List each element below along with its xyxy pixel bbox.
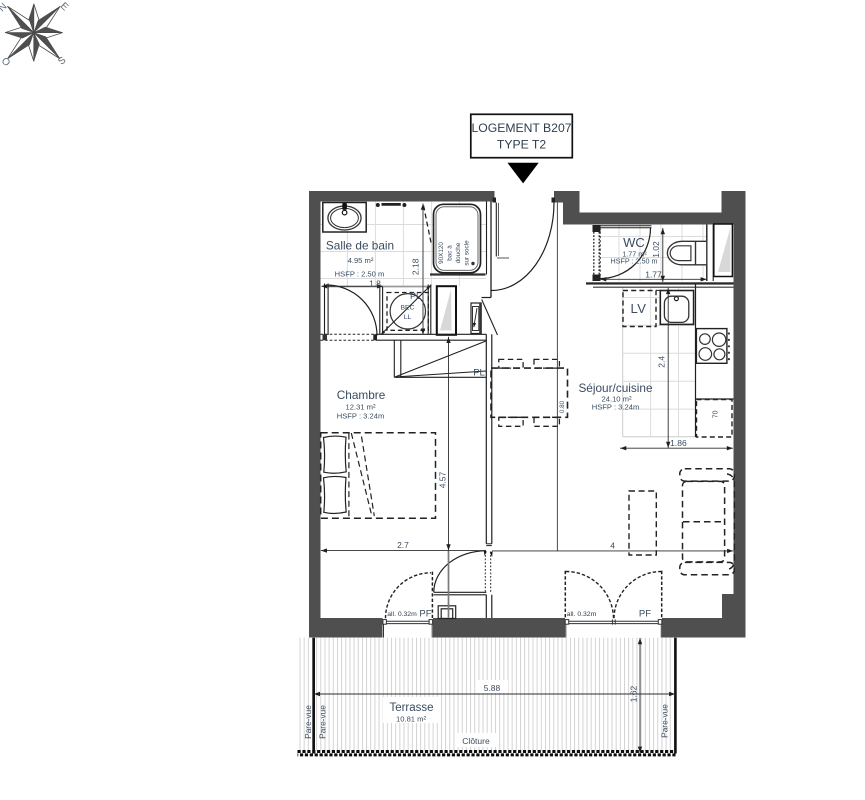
svg-text:1.86: 1.86 (670, 438, 687, 448)
svg-text:HSFP : 3.24m: HSFP : 3.24m (337, 412, 385, 421)
svg-text:Terrasse: Terrasse (389, 702, 433, 714)
svg-text:0.80: 0.80 (559, 400, 566, 413)
svg-text:LV: LV (631, 301, 647, 316)
svg-text:90X120: 90X120 (438, 242, 445, 264)
svg-text:10.81 m²: 10.81 m² (396, 715, 426, 724)
svg-text:2.4: 2.4 (657, 356, 667, 368)
svg-text:Pare-vue: Pare-vue (660, 704, 670, 738)
svg-text:Pare-vue: Pare-vue (303, 705, 313, 739)
svg-text:all. 0.32m: all. 0.32m (567, 611, 597, 618)
svg-text:1.77: 1.77 (645, 270, 662, 280)
svg-text:4.95 m²: 4.95 m² (348, 256, 374, 265)
svg-text:PL: PL (473, 368, 485, 379)
svg-text:12.31 m²: 12.31 m² (346, 403, 376, 412)
svg-text:HSFP : 2.50 m: HSFP : 2.50 m (335, 270, 385, 279)
svg-text:sur socle: sur socle (463, 240, 470, 266)
svg-text:2.18: 2.18 (410, 258, 420, 275)
svg-text:PF: PF (419, 609, 431, 620)
svg-text:4: 4 (610, 541, 615, 551)
svg-text:bac à: bac à (447, 245, 454, 261)
svg-text:1.02: 1.02 (651, 241, 661, 258)
svg-text:all. 0.32m: all. 0.32m (387, 611, 417, 618)
svg-text:2.7: 2.7 (397, 540, 409, 550)
svg-text:70: 70 (713, 410, 720, 418)
svg-text:TYPE T2: TYPE T2 (497, 137, 546, 151)
svg-text:1.62: 1.62 (629, 685, 639, 702)
svg-text:Pare-vue: Pare-vue (318, 705, 328, 739)
svg-text:Salle de bain: Salle de bain (326, 239, 394, 253)
svg-text:Séjour/cuisine: Séjour/cuisine (578, 381, 653, 395)
svg-text:BEC: BEC (401, 305, 415, 312)
svg-text:HSFP : 3.24m: HSFP : 3.24m (592, 403, 640, 412)
svg-text:WC: WC (623, 235, 645, 250)
svg-text:douche: douche (455, 242, 462, 263)
svg-text:4.57: 4.57 (438, 471, 448, 488)
svg-text:PL: PL (410, 291, 421, 301)
svg-text:PF: PF (639, 609, 651, 620)
svg-text:Chambre: Chambre (337, 388, 386, 402)
svg-text:5.88: 5.88 (484, 683, 501, 693)
svg-text:LOGEMENT B207: LOGEMENT B207 (471, 121, 571, 135)
svg-text:LL: LL (404, 314, 412, 321)
svg-text:Clôture: Clôture (462, 736, 490, 746)
